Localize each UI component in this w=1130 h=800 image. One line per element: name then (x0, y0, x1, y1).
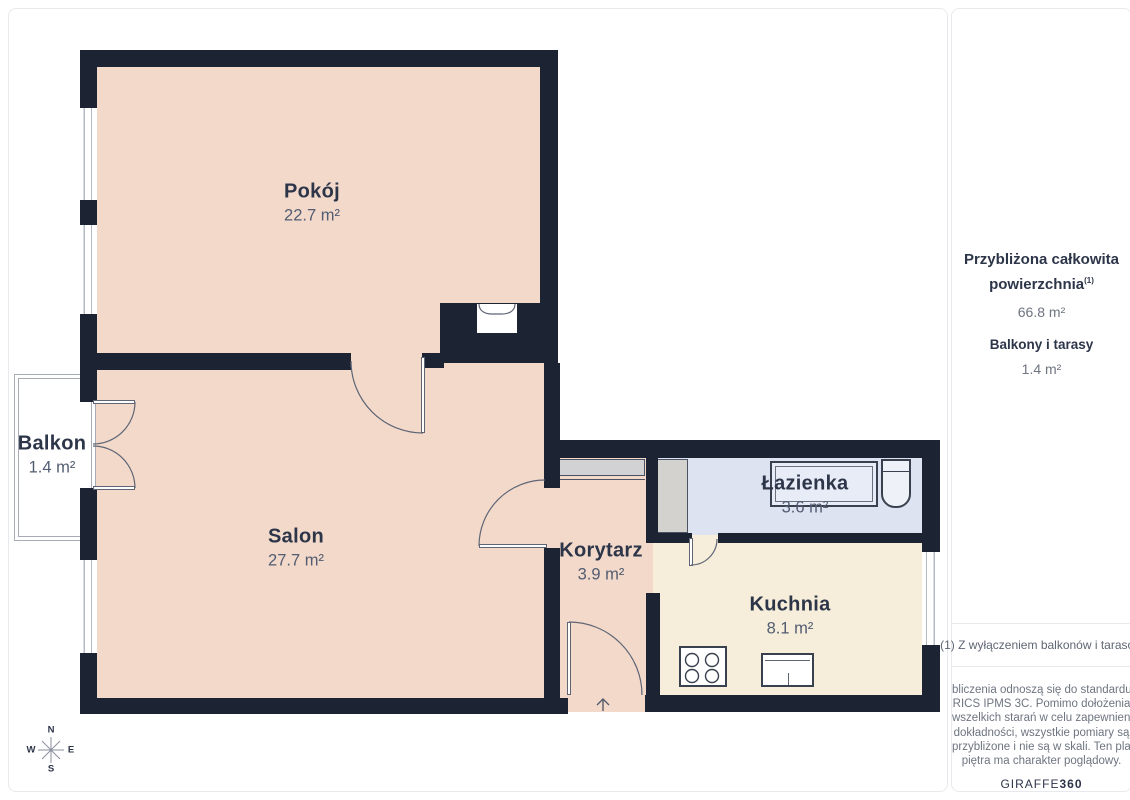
total-area-value: 66.8 m² (952, 304, 1130, 320)
room-label-balkon: Balkon 1.4 m² (18, 433, 86, 478)
kuchnia-area: 8.1 m² (750, 620, 831, 639)
disclaimer-line: dokładności, wszystkie pomiary są (952, 726, 1130, 740)
compass-star (38, 737, 64, 763)
salon-name: Salon (268, 526, 324, 549)
room-label-lazienka: Łazienka 3.6 m² (762, 473, 849, 518)
footnote-text: (1) Z wyłączeniem balkonów i tarasów (952, 623, 1130, 667)
burner (706, 654, 719, 667)
room-label-korytarz: Korytarz 3.9 m² (559, 540, 643, 585)
salon-area: 27.7 m² (268, 552, 324, 571)
sidebar-card: Przybliżona całkowita powierzchnia(1) 66… (951, 8, 1130, 792)
door-arc-entrance (569, 622, 642, 695)
area-summary: Przybliżona całkowita powierzchnia(1) 66… (952, 249, 1130, 377)
floorplan-page: { "plan": { "rooms": { "pokoj": {"name":… (0, 0, 1130, 800)
balcony-area-value: 1.4 m² (952, 361, 1130, 377)
balcony-area-label: Balkony i tarasy (952, 337, 1130, 352)
disclaimer-line: piętra ma charakter poglądowy. (952, 754, 1130, 768)
burner (686, 670, 699, 683)
door-arc-balcony-top (93, 402, 135, 444)
burner (706, 670, 719, 683)
compass-w: W (27, 745, 36, 756)
disclaimer-line: przybliżone i nie są w skali. Ten plan (952, 740, 1130, 754)
compass-s: S (48, 764, 54, 775)
korytarz-area: 3.9 m² (559, 566, 643, 585)
balkon-area: 1.4 m² (18, 459, 86, 478)
burner (686, 654, 699, 667)
total-area-label-line2: powierzchnia(1) (952, 270, 1130, 295)
lazienka-area: 3.6 m² (762, 499, 849, 518)
room-label-pokoj: Pokój 22.7 m² (284, 181, 340, 226)
door-arc-pokoj (351, 361, 423, 433)
disclaimer: bliczenia odnoszą się do standardu RICS … (952, 683, 1130, 791)
door-arc-bathroom (691, 539, 717, 565)
pokoj-area: 22.7 m² (284, 207, 340, 226)
disclaimer-line: RICS IPMS 3C. Pomimo dołożenia (952, 697, 1130, 711)
compass-e: E (68, 745, 74, 756)
footnote-marker: (1) (1084, 276, 1094, 285)
door-arc-salon (479, 480, 545, 546)
balkon-name: Balkon (18, 433, 86, 456)
disclaimer-line: wszelkich starań w celu zapewnienia (952, 711, 1130, 725)
room-label-salon: Salon 27.7 m² (268, 526, 324, 571)
compass-n: N (48, 725, 55, 736)
lazienka-name: Łazienka (762, 473, 849, 496)
door-arc-balcony-bottom (93, 446, 135, 488)
korytarz-name: Korytarz (559, 540, 643, 563)
disclaimer-line: bliczenia odnoszą się do standardu (952, 683, 1130, 697)
pokoj-name: Pokój (284, 181, 340, 204)
plan-annotations (0, 0, 950, 800)
room-label-kuchnia: Kuchnia 8.1 m² (750, 594, 831, 639)
giraffe360-logo: GIRAFFE360 (952, 777, 1130, 791)
entrance-arrow (597, 699, 609, 711)
kuchnia-name: Kuchnia (750, 594, 831, 617)
basin-outline (479, 304, 515, 314)
total-area-label-line1: Przybliżona całkowita (952, 249, 1130, 270)
